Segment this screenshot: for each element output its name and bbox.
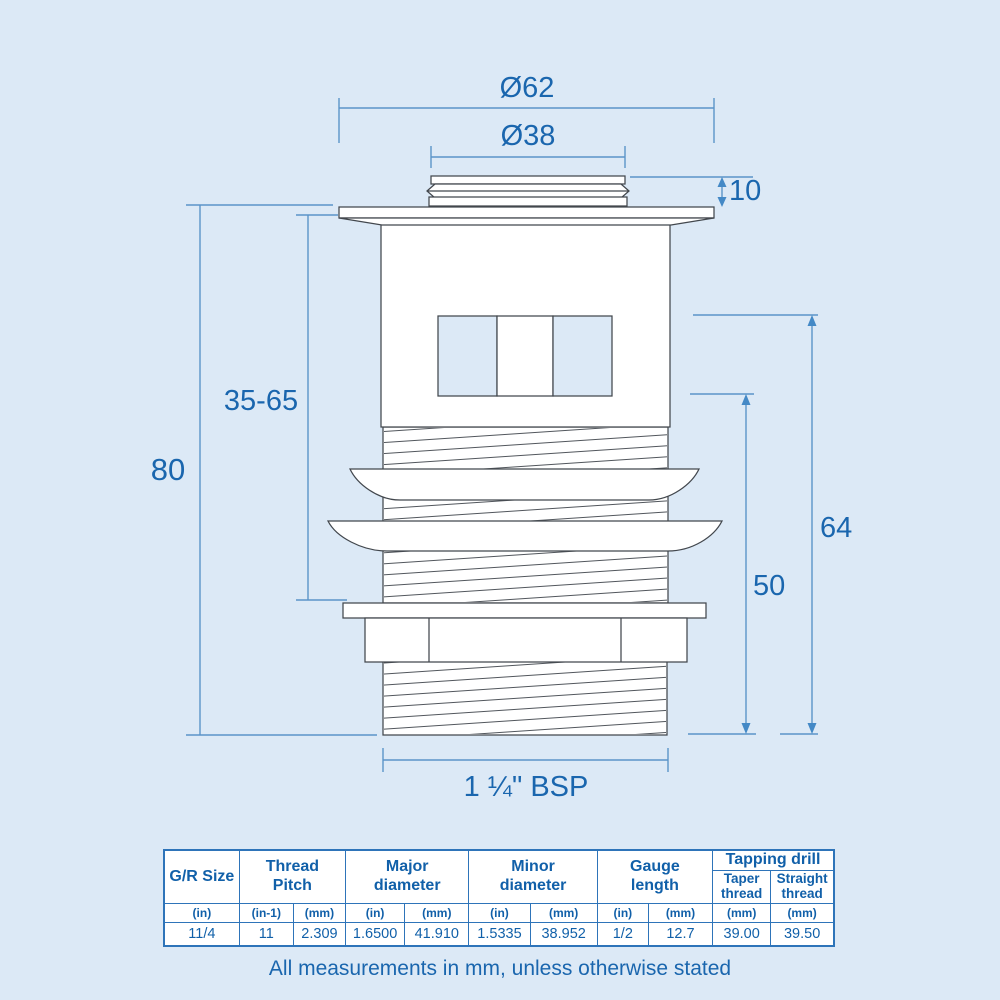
value-cell: 2.309 (293, 922, 345, 946)
value-cell: 41.910 (405, 922, 469, 946)
backnut (365, 618, 687, 662)
value-cell: 12.7 (648, 922, 712, 946)
value-cell: 11/4 (164, 922, 239, 946)
thread-section-lower (383, 661, 667, 735)
col-header-thread-pitch: Thread Pitch (239, 850, 345, 903)
dim-cap-height: 10 (630, 175, 761, 207)
value-cell: 38.952 (530, 922, 597, 946)
sealing-washer-top (350, 469, 699, 500)
overflow-slot (438, 316, 612, 396)
values-row: 11/4 11 2.309 1.6500 41.910 1.5335 38.95… (164, 922, 834, 946)
col-header-straight-thread: Straight thread (771, 870, 834, 903)
unit-cell: (in) (469, 903, 530, 922)
unit-cell: (mm) (530, 903, 597, 922)
dim-label-cap-height: 10 (729, 175, 761, 207)
dim-label-thread-length-inner: 50 (753, 570, 785, 602)
dim-label-adjustable-range: 35-65 (224, 385, 298, 417)
col-header-taper-thread: Taper thread (713, 870, 771, 903)
unit-cell: (mm) (648, 903, 712, 922)
unit-cell: (mm) (771, 903, 834, 922)
value-cell: 39.50 (771, 922, 834, 946)
col-header-minor-diameter: Minor diameter (469, 850, 597, 903)
plug-cap (427, 176, 629, 206)
unit-cell: (in-1) (239, 903, 293, 922)
backnut-washer (343, 603, 706, 618)
unit-cell: (mm) (405, 903, 469, 922)
col-header-major-diameter: Major diameter (346, 850, 469, 903)
value-cell: 1.5335 (469, 922, 530, 946)
col-header-gr-size: G/R Size (164, 850, 239, 903)
dim-thread-length-inner: 50 (688, 394, 785, 734)
unit-cell: (mm) (293, 903, 345, 922)
value-cell: 39.00 (713, 922, 771, 946)
col-header-gauge-length: Gauge length (597, 850, 712, 903)
dim-inner-diameter: Ø38 (431, 120, 625, 168)
dim-label-thread-size: 1 ¼" BSP (464, 771, 589, 803)
page: Ø62 Ø38 10 80 35-65 64 (0, 0, 1000, 1000)
col-header-tapping-drill: Tapping drill (713, 850, 834, 870)
dim-label-outer-diameter: Ø62 (500, 72, 555, 104)
dim-overall-length: 80 (151, 205, 377, 735)
unit-cell: (in) (597, 903, 648, 922)
value-cell: 1/2 (597, 922, 648, 946)
waste-fitting (328, 176, 722, 735)
top-flange (339, 207, 714, 225)
dim-label-inner-diameter: Ø38 (501, 120, 556, 152)
sealing-washer-bottom (328, 521, 722, 551)
dim-label-thread-length-outer: 64 (820, 512, 852, 544)
dim-thread-size: 1 ¼" BSP (383, 748, 668, 803)
dim-adjustable-range: 35-65 (224, 215, 347, 600)
unit-cell: (in) (164, 903, 239, 922)
thread-section-upper (383, 427, 668, 603)
unit-cell: (mm) (713, 903, 771, 922)
technical-drawing: Ø62 Ø38 10 80 35-65 64 (0, 0, 1000, 840)
unit-cell: (in) (346, 903, 405, 922)
dim-label-overall-length: 80 (151, 452, 185, 487)
footer-note: All measurements in mm, unless otherwise… (0, 957, 1000, 981)
value-cell: 11 (239, 922, 293, 946)
spec-table: G/R Size Thread Pitch Major diameter Min… (163, 849, 835, 947)
units-row: (in) (in-1) (mm) (in) (mm) (in) (mm) (in… (164, 903, 834, 922)
value-cell: 1.6500 (346, 922, 405, 946)
